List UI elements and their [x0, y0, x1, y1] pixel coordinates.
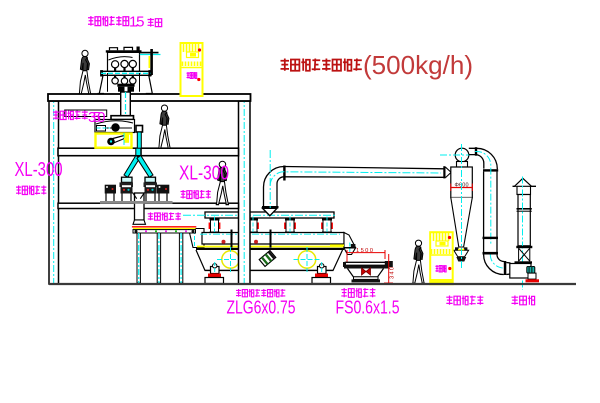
svg-text:XL-300: XL-300	[15, 159, 63, 181]
svg-text:ZLG6x0.75: ZLG6x0.75	[227, 298, 296, 318]
svg-text:1.5: 1.5	[129, 14, 145, 31]
svg-text:(500kg/h): (500kg/h)	[363, 50, 473, 80]
svg-text:350: 350	[88, 109, 106, 126]
svg-text:1500: 1500	[356, 248, 373, 254]
svg-text:XL-300: XL-300	[179, 163, 229, 185]
svg-text:340: 340	[390, 267, 396, 279]
svg-text:FS0.6x1.5: FS0.6x1.5	[336, 298, 400, 318]
